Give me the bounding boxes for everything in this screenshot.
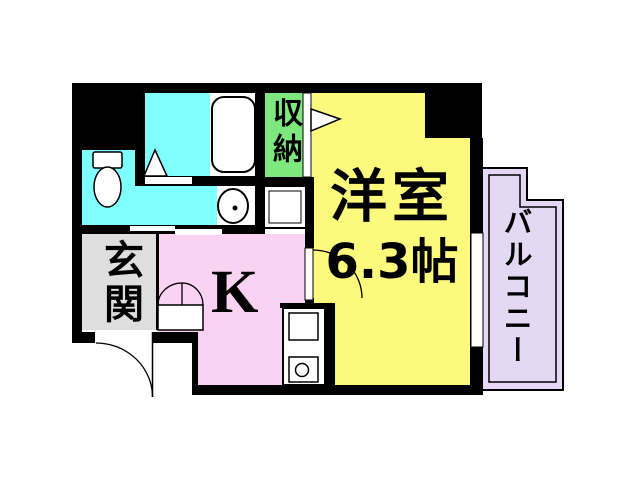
shower-door-opening [145, 177, 192, 184]
wash-basin-drain [233, 206, 238, 211]
kitchen-sink [289, 313, 318, 340]
wall-toilet-divider [135, 150, 145, 186]
wall-entrance-side [192, 332, 198, 392]
bathtub [212, 97, 255, 172]
room-door-leaf [305, 248, 313, 300]
wash-basin [218, 189, 248, 223]
storage-door-leaf [303, 93, 311, 177]
floor-plan: 収納 洋室 6.3帖 バルコニー 玄関 K [0, 0, 640, 480]
wall-block-top-right [425, 83, 482, 138]
room-washroom [135, 186, 217, 225]
wall-bottom [192, 385, 483, 395]
entrance-label: 玄関 [97, 239, 143, 327]
western-room-label: 洋室 6.3帖 [316, 162, 468, 292]
storage-label: 収納 [266, 97, 302, 169]
washroom-slider-b [175, 229, 222, 235]
wall-block-top-left [72, 83, 145, 150]
toilet-bowl [94, 167, 121, 207]
balcony-label: バルコニー [499, 207, 533, 367]
wall-kitchen-right-lower [325, 303, 335, 395]
wall-storage-bottom [255, 177, 314, 186]
kitchen-label: K [211, 258, 258, 328]
entrance-opening [95, 332, 152, 343]
balcony-window [471, 233, 483, 347]
western-room-name: 洋室 [316, 162, 468, 232]
toilet-tank [93, 152, 122, 168]
shoe-cabinet [158, 305, 203, 330]
washroom-slider-a [130, 226, 175, 231]
entrance-door-swing [96, 343, 153, 397]
kitchen-burner [296, 364, 309, 377]
western-room-size: 6.3帖 [316, 232, 468, 292]
washing-machine-space [264, 186, 306, 228]
